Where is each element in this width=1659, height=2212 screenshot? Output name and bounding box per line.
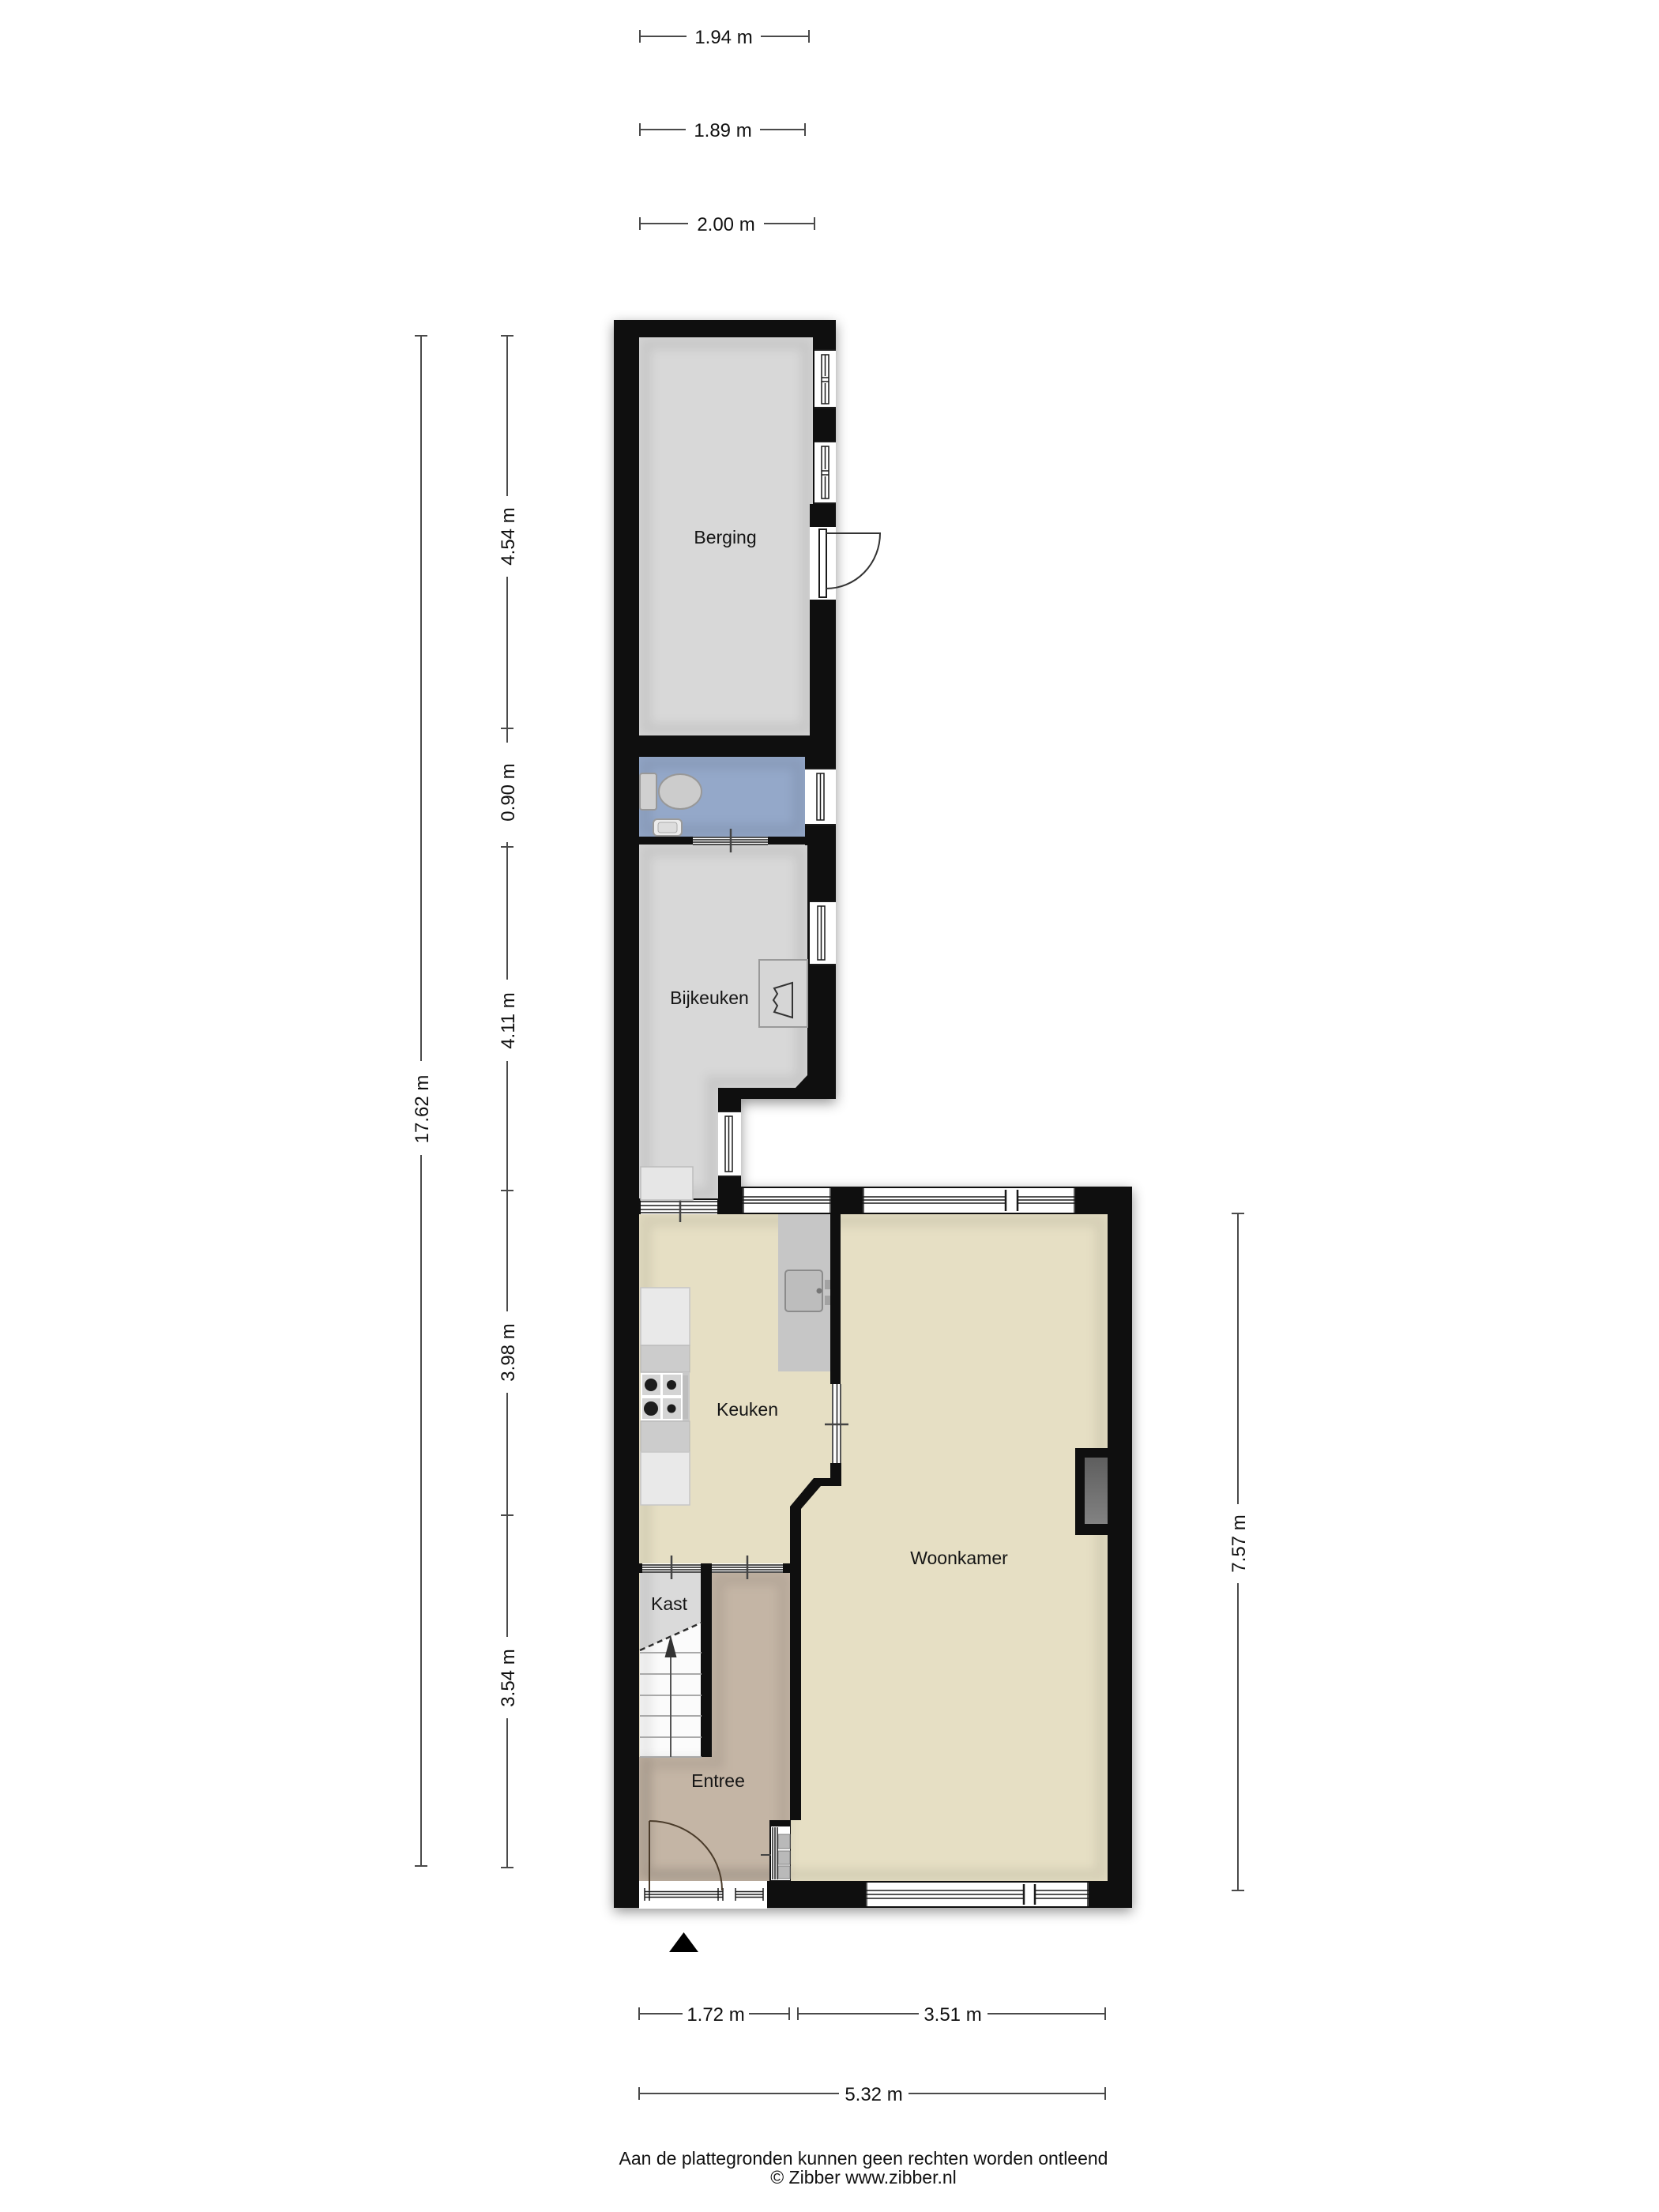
svg-text:3.51 m: 3.51 m (924, 2004, 981, 2026)
svg-text:3.54 m: 3.54 m (498, 1649, 519, 1706)
svg-text:Woonkamer: Woonkamer (910, 1548, 1008, 1568)
svg-text:© Zibber www.zibber.nl: © Zibber www.zibber.nl (770, 2167, 957, 2188)
svg-text:3.98 m: 3.98 m (498, 1323, 519, 1381)
svg-text:5.32 m: 5.32 m (845, 2084, 902, 2105)
svg-text:17.62 m: 17.62 m (412, 1075, 433, 1144)
svg-text:1.94 m: 1.94 m (694, 27, 752, 48)
svg-text:Entree: Entree (691, 1770, 745, 1791)
svg-text:Bijkeuken: Bijkeuken (670, 987, 749, 1008)
svg-text:Keuken: Keuken (717, 1399, 778, 1420)
svg-text:4.54 m: 4.54 m (498, 507, 519, 565)
svg-text:2.00 m: 2.00 m (697, 214, 754, 235)
svg-text:Aan de plattegronden kunnen ge: Aan de plattegronden kunnen geen rechten… (619, 2148, 1108, 2169)
svg-text:1.72 m: 1.72 m (687, 2004, 744, 2026)
svg-text:0.90 m: 0.90 m (498, 763, 519, 821)
svg-text:4.11 m: 4.11 m (498, 992, 519, 1049)
svg-text:7.57 m: 7.57 m (1228, 1514, 1250, 1572)
svg-text:Kast: Kast (651, 1593, 688, 1614)
svg-text:1.89 m: 1.89 m (694, 120, 751, 141)
svg-text:Berging: Berging (694, 527, 756, 547)
